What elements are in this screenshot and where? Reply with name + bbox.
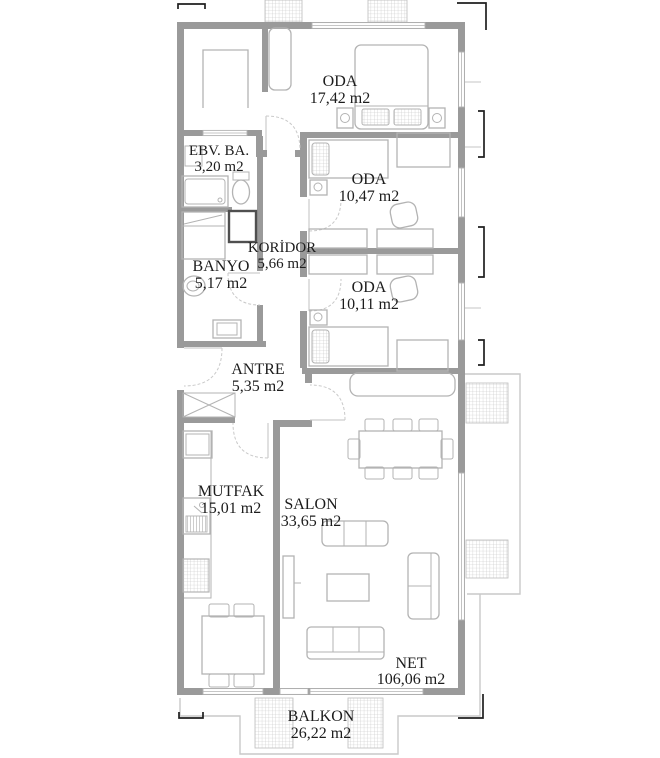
room-name: MUTFAK [198,483,265,500]
stove [183,559,209,592]
wall-connector [273,420,312,427]
room-area: 5,17 m2 [195,275,247,292]
entry-door [184,348,222,386]
dim-bracket [458,694,483,718]
ebv-sliding-door [203,130,247,135]
wall-left-upper [177,22,184,348]
window-top [312,23,425,29]
room-name: BANYO [193,258,250,275]
room-label-oda-2: ODA 10,47 m2 [339,171,399,205]
window-right-oda2 [459,168,465,217]
furniture-oda-3 [309,255,448,371]
tv-unit [283,556,301,618]
balcony-hatch [466,540,508,578]
wall-mutfak-salon [273,427,280,688]
room-name: ODA [323,73,358,90]
wall-antre-bottom [177,417,235,423]
shower-cabin [229,211,256,242]
room-area: 17,42 m2 [310,90,370,107]
room-label-oda-master: ODA 17,42 m2 [310,73,370,107]
room-name: ODA [352,279,387,296]
room-area: 3,20 m2 [194,159,243,175]
nightstand [310,180,327,195]
dining-chair [441,439,453,459]
room-label-salon: SALON 33,65 m2 [281,496,341,530]
wall-koridor-right-c [300,311,307,368]
door-oda-master [266,116,300,150]
chair [209,674,229,687]
dresser [309,255,367,274]
room-label-ebv-ba: EBV. BA. 3,20 m2 [189,143,249,175]
room-area: 106,06 m2 [377,671,445,688]
toilet [233,180,250,204]
dim-bracket [178,4,205,9]
room-area: 33,65 m2 [281,513,341,530]
dim-bracket [478,227,484,277]
sideboard [350,373,455,396]
room-name: EBV. BA. [189,143,249,159]
room-label-banyo: BANYO 5,17 m2 [193,258,250,292]
chair [234,604,254,617]
closet-unit [203,50,248,108]
dining-chair [393,419,412,431]
door-salon [310,385,345,420]
balcony-hatch [466,383,508,423]
room-label-koridor: KORİDOR 5,66 m2 [248,240,316,272]
window-right-salon [459,473,465,620]
wall-koridor-right-a [300,132,307,197]
coffee-table [327,574,369,601]
room-label-balkon: BALKON 26,22 m2 [288,708,355,742]
vent-shafts [265,0,407,22]
door-oda2 [309,199,341,231]
pillow [312,143,329,175]
desk [377,229,433,248]
room-name: BALKON [288,708,355,725]
dining-chair [365,419,384,431]
wall-antre-salon-stub [305,368,312,383]
pillow [362,109,389,125]
balcony-door-gap [280,689,308,695]
room-label-net: NET 106,06 m2 [377,655,445,688]
door-mutfak [233,423,268,458]
wardrobe [269,28,291,90]
room-area: 15,01 m2 [201,500,261,517]
shower [182,176,228,207]
dimension-marks [178,3,486,718]
desk [377,255,433,274]
nightstand [337,108,353,128]
chair [209,604,229,617]
room-area: 5,66 m2 [257,256,306,272]
nightstand [310,310,327,325]
room-name: SALON [284,496,338,513]
wall-closet-divider [262,22,268,92]
window-right-oda3 [459,283,465,340]
floor-plan: ODA 17,42 m2 EBV. BA. 3,20 m2 ODA 10,47 … [0,0,660,758]
room-name: ODA [352,171,387,188]
furniture-antre [183,393,235,417]
dresser [309,229,367,248]
door-oda3 [309,279,341,311]
windows [203,23,464,695]
window-right-master [459,52,465,107]
refrigerator [183,431,212,458]
room-label-antre: ANTRE 5,35 m2 [231,361,284,395]
room-area: 10,47 m2 [339,188,399,205]
vent-shaft [368,0,407,22]
room-name: KORİDOR [248,240,316,256]
dim-bracket [478,340,484,365]
wall-oda-divider-2 [302,248,465,254]
room-name: ANTRE [231,361,284,378]
window-bottom-salon [310,689,423,695]
room-area: 26,22 m2 [291,725,351,742]
vent-shaft [265,0,302,22]
sofa [307,627,384,659]
kitchen-table [202,616,264,674]
dining-chair [393,467,412,479]
balconies [180,374,520,754]
room-label-mutfak: MUTFAK 15,01 m2 [198,483,265,517]
wall-banyo-divider [177,207,232,212]
room-area: 10,11 m2 [339,296,399,313]
dim-bracket [179,712,203,718]
dining-chair [365,467,384,479]
pillow [312,330,329,363]
nightstand [429,108,445,128]
wardrobe [397,340,448,371]
furniture-mutfak [183,431,264,687]
dining-table [359,431,442,468]
armchair-sofa [408,553,439,619]
dining-chair [419,419,438,431]
window-bottom-mutfak [203,689,263,695]
pillow [394,109,421,125]
dim-bracket [478,111,484,157]
room-area: 5,35 m2 [232,378,284,395]
dining-chair [419,467,438,479]
wall-banyo-bottom [177,341,266,347]
wardrobe [397,133,450,167]
floor-plan-drawing: ODA 17,42 m2 EBV. BA. 3,20 m2 ODA 10,47 … [0,0,660,758]
room-name: NET [395,655,426,672]
dining-chair [348,439,360,459]
chair [234,674,254,687]
duct-shaft [183,393,235,417]
wall-koridor-left-b [257,305,263,347]
